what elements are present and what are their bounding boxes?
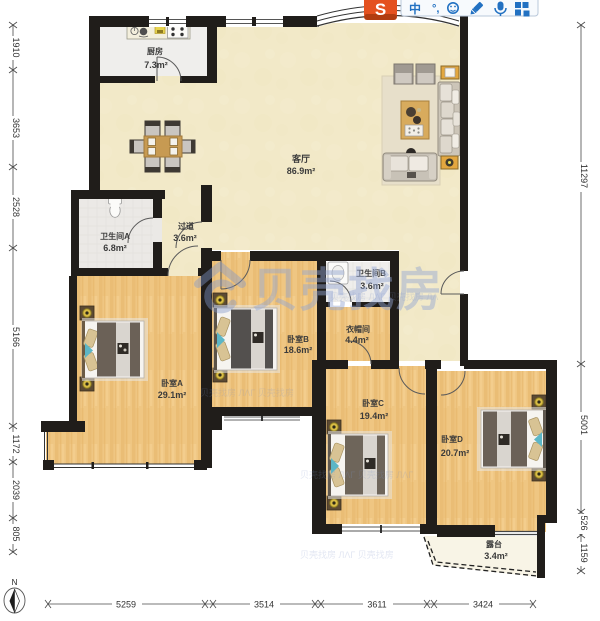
svg-text:5259: 5259 xyxy=(116,600,136,610)
svg-text:526: 526 xyxy=(579,515,589,530)
svg-text:2039: 2039 xyxy=(11,480,21,500)
svg-text:贝壳找房 ЛΛΓ 贝壳找房 ЛΛ: 贝壳找房 ЛΛΓ 贝壳找房 ЛΛ xyxy=(330,291,438,302)
svg-text:3653: 3653 xyxy=(11,118,21,138)
svg-text:衣帽间: 衣帽间 xyxy=(346,324,370,334)
svg-text:1910: 1910 xyxy=(11,37,21,57)
svg-text:7.3m²: 7.3m² xyxy=(144,60,168,70)
svg-text:3.4m²: 3.4m² xyxy=(484,551,508,561)
svg-text:卧室A: 卧室A xyxy=(161,378,183,388)
svg-text:卧室B: 卧室B xyxy=(287,334,309,344)
svg-text:卫生间A: 卫生间A xyxy=(100,231,130,241)
svg-text:805: 805 xyxy=(11,526,21,541)
svg-text:贝壳找房 ЛΛГ 贝壳找房: 贝壳找房 ЛΛГ 贝壳找房 xyxy=(300,549,394,560)
svg-text:露台: 露台 xyxy=(486,539,502,549)
svg-text:°,: °, xyxy=(432,3,439,15)
svg-text:S: S xyxy=(375,0,386,19)
svg-text:11297: 11297 xyxy=(579,164,589,188)
svg-text:18.6m²: 18.6m² xyxy=(284,345,313,355)
svg-text:贝壳找房 ЛΛΓ 贝壳找房: 贝壳找房 ЛΛΓ 贝壳找房 xyxy=(200,387,294,398)
svg-text:贝壳找房: 贝壳找房 xyxy=(252,264,444,316)
svg-text:中: 中 xyxy=(409,1,421,16)
svg-text:6.8m²: 6.8m² xyxy=(103,243,127,253)
svg-text:客厅: 客厅 xyxy=(291,153,310,164)
svg-text:3514: 3514 xyxy=(254,600,274,610)
svg-text:29.1m²: 29.1m² xyxy=(158,390,187,400)
svg-text:20.7m²: 20.7m² xyxy=(441,448,470,458)
svg-text:2528: 2528 xyxy=(11,197,21,217)
svg-text:1172: 1172 xyxy=(11,434,21,453)
svg-text:3424: 3424 xyxy=(473,600,493,610)
svg-text:过道: 过道 xyxy=(178,221,194,231)
svg-text:86.9m²: 86.9m² xyxy=(287,166,316,176)
svg-text:5166: 5166 xyxy=(11,327,21,347)
svg-text:3611: 3611 xyxy=(367,600,386,610)
svg-text:卧室D: 卧室D xyxy=(441,434,463,444)
svg-text:卧室C: 卧室C xyxy=(362,398,384,408)
svg-text:3.6m²: 3.6m² xyxy=(173,233,197,243)
svg-text:N: N xyxy=(12,578,18,587)
svg-text:厨房: 厨房 xyxy=(147,46,163,56)
svg-text:5001: 5001 xyxy=(579,415,589,435)
svg-text:贝壳找房 ЛΛΓ 贝壳找房 ЛΛГ: 贝壳找房 ЛΛΓ 贝壳找房 ЛΛГ xyxy=(300,469,413,480)
svg-text:4.4m²: 4.4m² xyxy=(345,335,369,345)
svg-text:19.4m²: 19.4m² xyxy=(360,411,389,421)
svg-text:1159: 1159 xyxy=(579,543,589,562)
